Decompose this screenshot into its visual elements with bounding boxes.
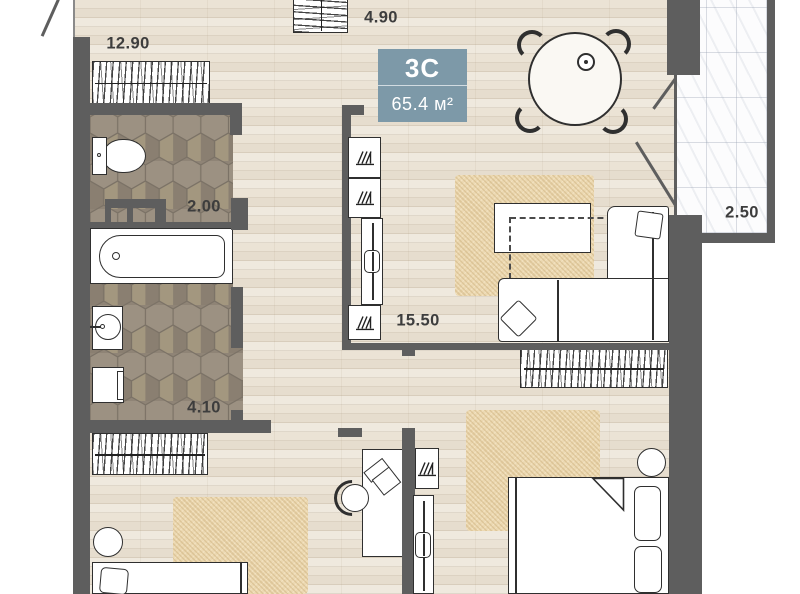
balcony-window-line	[674, 75, 677, 233]
sofa-seam	[557, 280, 559, 341]
wall-bathroom-right	[231, 198, 248, 230]
outside-left	[0, 37, 73, 594]
outside-right-top	[775, 0, 800, 243]
hallway-wardrobe	[293, 0, 348, 33]
dimension-label-living-room: 15.50	[396, 312, 439, 331]
dining-table	[528, 32, 622, 126]
wall-outer-left	[73, 37, 90, 594]
bookshelf	[348, 305, 381, 340]
blanket-fold	[590, 477, 627, 513]
outside-right-bottom	[702, 243, 800, 594]
wc-partition-tooth	[155, 208, 166, 222]
wall-door-jamb	[230, 115, 242, 135]
bedroom-left-wardrobe	[92, 433, 208, 475]
floor-plan: 12.90 4.90 2.00 4.10 15.50 2.50 3C 65.4 …	[0, 0, 800, 594]
fold-out-outline	[509, 217, 511, 279]
area-badge: 3C 65.4 м²	[378, 49, 467, 122]
bed-mattress-line	[515, 478, 517, 594]
dimension-label-wc: 2.00	[187, 198, 221, 217]
top-room-wardrobe	[92, 61, 210, 104]
wall-balcony-right	[767, 0, 775, 243]
toilet-button	[97, 153, 101, 157]
bedroom-right-stool	[637, 448, 666, 477]
toilet-bowl	[103, 139, 146, 173]
table-decor-dot	[584, 60, 588, 64]
bed-pillow	[634, 486, 661, 541]
washing-machine-door	[117, 371, 124, 400]
wall-bathroom-bottom	[73, 420, 271, 433]
wall-desk-nook	[338, 428, 362, 437]
sink-faucet-dot	[100, 324, 105, 329]
entrance-frame-line	[73, 0, 75, 37]
wall-balcony-pillar	[667, 0, 700, 75]
bookshelf	[348, 137, 381, 178]
bookshelf	[415, 448, 439, 489]
wall-bathroom-top	[73, 103, 242, 115]
plan-type-label: 3C	[378, 49, 467, 86]
wc-partition-tooth	[127, 208, 133, 222]
tv-unit-living	[361, 218, 383, 305]
wall-outer-right	[669, 215, 702, 594]
wall-living-bottom	[343, 343, 670, 350]
desk-chair	[341, 484, 369, 512]
tv-unit-bedroom	[413, 495, 434, 594]
wall-column-jamb	[342, 105, 364, 115]
dimension-label-top-left-room: 12.90	[106, 35, 149, 54]
wc-partition-shelf	[105, 199, 166, 208]
bed-pillow	[99, 567, 129, 594]
bookshelf	[348, 178, 381, 218]
dimension-label-bathroom: 4.10	[187, 399, 221, 418]
wall-bathroom-right	[231, 287, 243, 348]
bed-mattress-line	[240, 563, 242, 594]
wc-partition-tooth	[105, 208, 111, 222]
dimension-label-hallway: 4.90	[364, 9, 398, 28]
bedroom-right-wardrobe	[520, 348, 668, 388]
plan-area-label: 65.4 м²	[378, 86, 467, 122]
bathtub-drain	[112, 252, 120, 260]
bed-pillow	[634, 546, 662, 593]
wall-balcony-bottom	[669, 233, 775, 243]
sofa-pillow	[634, 210, 663, 239]
bedroom-left-stool	[93, 527, 123, 557]
dimension-label-balcony: 2.50	[725, 204, 759, 223]
